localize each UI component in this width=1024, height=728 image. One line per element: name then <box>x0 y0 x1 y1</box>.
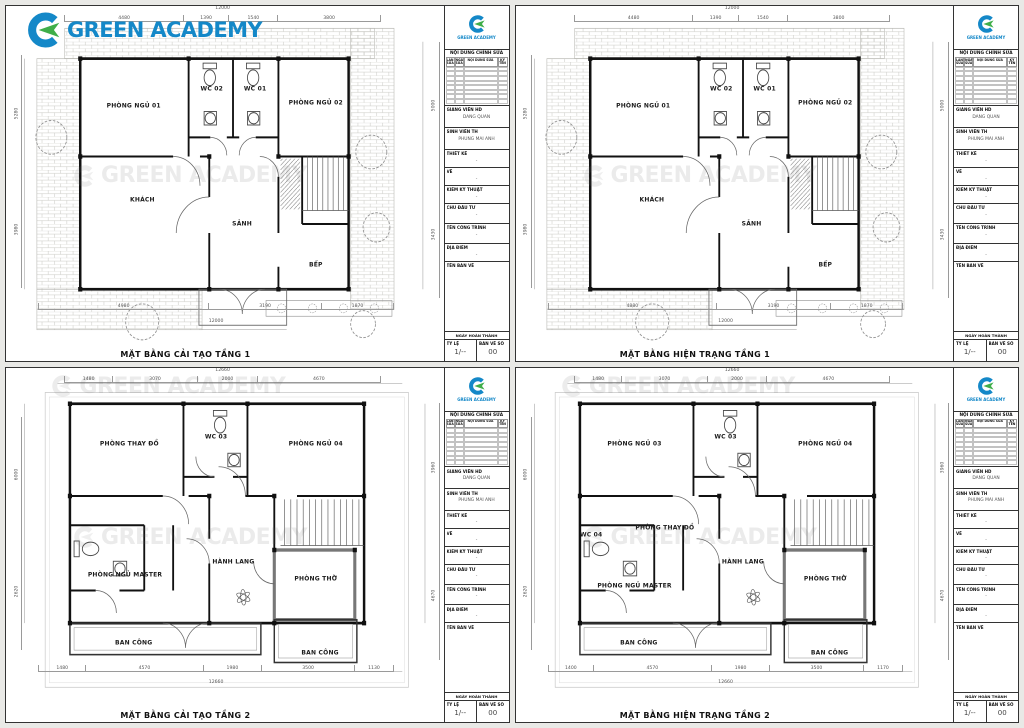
field-giang-vien-hd: GIẢNG VIÊN HD DANG QUAN <box>954 106 1018 128</box>
dimension-label: 4670 <box>767 376 890 383</box>
worship-room <box>784 550 865 620</box>
field-ve: VẼ - <box>445 529 509 547</box>
revision-empty-cell <box>464 460 498 465</box>
title-block: GREEN ACADEMY NỘI DUNG CHỈNH SỬA LẦN SỬA… <box>954 368 1018 723</box>
field-sinh-vien-th: SINH VIÊN TH PHUNG MAI ANH <box>954 489 1018 511</box>
dimension-label: 3960 <box>431 462 436 474</box>
sheet-number-cell: BẢN VẼ SỐ 00 <box>986 701 1019 722</box>
revision-empty-cell <box>1007 460 1017 465</box>
field-dia-diem: ĐỊA ĐIỂM - <box>954 244 1018 262</box>
stair-hatch <box>790 159 810 210</box>
dimension-label: 1480 <box>574 376 623 383</box>
title-block-footer: NGÀY HOÀN THÀNH TỶ LỆ 1/-- BẢN VẼ SỐ 00 <box>954 332 1018 361</box>
scale-cell: TỶ LỆ 1/-- <box>954 340 986 361</box>
title-block: GREEN ACADEMY NỘI DUNG CHỈNH SỬA LẦN SỬA… <box>954 6 1018 361</box>
dimension-row-top: 4480139015403800 <box>574 15 890 22</box>
scale-cell: TỶ LỆ 1/-- <box>445 701 477 722</box>
field-dia-diem: ĐỊA ĐIỂM - <box>445 244 509 262</box>
dimension-label: 3430 <box>431 228 436 240</box>
sheet-number-value: 00 <box>989 709 1017 717</box>
revision-header: NỘI DUNG CHỈNH SỬA <box>954 412 1018 419</box>
field-kiem-ky-thuat: KIỂM KỸ THUẬT - <box>445 186 509 204</box>
revision-column-header: LẦN SỬA <box>446 57 455 67</box>
sheet-number-value: 00 <box>479 709 507 717</box>
dimension-column-left: 52803980 <box>11 55 22 288</box>
dimension-label: 1170 <box>864 665 904 672</box>
revision-column-header: KÝ TÊN <box>1007 419 1017 429</box>
dimension-label: 4570 <box>86 665 204 672</box>
revision-table: NỘI DUNG CHỈNH SỬA LẦN SỬANGÀY SỬANỘI DU… <box>954 412 1018 468</box>
floor2-plan-drawing <box>8 370 442 708</box>
dimension-label: 4880 <box>548 303 717 310</box>
revision-header: NỘI DUNG CHỈNH SỬA <box>445 412 509 419</box>
dimension-label: 4570 <box>594 665 712 672</box>
dimension-label: 5280 <box>523 108 528 120</box>
dimension-label: 1480 <box>64 376 113 383</box>
revision-empty-cell <box>446 460 455 465</box>
revision-column-header: KÝ TÊN <box>498 57 508 67</box>
revision-column-header: NỘI DUNG SỬA <box>973 57 1007 67</box>
dimension-label: 3190 <box>209 303 322 310</box>
plan-drawing-slot <box>518 8 952 346</box>
sheet-quadrant-bottom-right: GREEN ACADEMY GREEN ACADEMY 12660 148030… <box>515 367 1020 724</box>
scale-value: 1/-- <box>447 348 475 356</box>
title-block-slot: GREEN ACADEMY NỘI DUNG CHỈNH SỬA LẦN SỬA… <box>445 368 509 723</box>
logo-text: GREEN ACADEMY <box>967 397 1006 402</box>
logo-g-icon <box>977 15 995 33</box>
dimension-label: 4670 <box>941 590 946 602</box>
title-block-footer: NGÀY HOÀN THÀNH TỶ LỆ 1/-- BẢN VẼ SỐ 00 <box>445 332 509 361</box>
title-block-logo: GREEN ACADEMY <box>954 368 1018 412</box>
house-outline <box>80 59 348 290</box>
dimension-row-bottom: 14804570198035001130 <box>38 665 393 672</box>
dimension-label: 1870 <box>322 303 394 310</box>
revision-table: NỘI DUNG CHỈNH SỬA LẦN SỬANGÀY SỬANỘI DU… <box>954 50 1018 106</box>
field-kiem-ky-thuat: KIỂM KỸ THUẬT - <box>954 186 1018 204</box>
logo-g-icon <box>468 15 486 33</box>
revision-grid: LẦN SỬANGÀY SỬANỘI DUNG SỬAKÝ TÊN <box>446 419 508 466</box>
dimension-label: 1540 <box>739 15 788 22</box>
scale-value: 1/-- <box>447 709 475 717</box>
field-ten-ban-ve: TÊN BẢN VẼ <box>445 262 509 332</box>
sheet-number-value: 00 <box>989 348 1017 356</box>
revision-empty-cell <box>1007 99 1017 104</box>
field-thiet-ke: THIẾT KẾ - <box>954 150 1018 168</box>
title-block-footer: NGÀY HOÀN THÀNH TỶ LỆ 1/-- BẢN VẼ SỐ 00 <box>954 693 1018 722</box>
field-dia-diem: ĐỊA ĐIỂM - <box>445 605 509 623</box>
dimension-label: 3500 <box>262 665 355 672</box>
field-giang-vien-hd: GIẢNG VIÊN HD DANG QUAN <box>954 467 1018 489</box>
plan-drawing-slot <box>8 8 442 346</box>
revision-empty-cell <box>455 99 464 104</box>
dimension-label: 4670 <box>258 376 381 383</box>
dimension-label: 3500 <box>770 665 863 672</box>
revision-grid: LẦN SỬANGÀY SỬANỘI DUNG SỬAKÝ TÊN <box>955 419 1017 466</box>
field-dia-diem: ĐỊA ĐIỂM - <box>954 605 1018 623</box>
title-block-slot: GREEN ACADEMY NỘI DUNG CHỈNH SỬA LẦN SỬA… <box>954 368 1018 723</box>
plan-area: GREEN ACADEMY 12000 4480139015403800 488… <box>516 6 955 361</box>
field-ten-cong-trinh: TÊN CÔNG TRÌNH - <box>954 224 1018 244</box>
dimension-label: 3800 <box>278 15 380 22</box>
revision-column-header: LẦN SỬA <box>446 419 455 429</box>
dimension-label: 1130 <box>355 665 394 672</box>
revision-empty-cell <box>973 99 1007 104</box>
drawing-sheet: GREEN ACADEMY GREEN ACADEMY 12660 148030… <box>5 367 510 724</box>
dimension-label: 3430 <box>941 228 946 240</box>
dimension-label: 2000 <box>708 376 768 383</box>
floor1-plan-drawing <box>8 8 442 346</box>
scale-value: 1/-- <box>956 348 984 356</box>
field-chu-dau-tu: CHỦ ĐẦU TƯ - <box>954 565 1018 585</box>
dimension-label: 2000 <box>198 376 258 383</box>
plan-drawing-slot <box>518 370 952 708</box>
overall-dimension-top: 12660 <box>64 368 380 373</box>
green-academy-logo: GREEN ACADEMY <box>26 12 262 48</box>
footer-label: NGÀY HOÀN THÀNH <box>445 332 509 340</box>
dimension-label: 1390 <box>693 15 739 22</box>
house-outline <box>590 59 858 290</box>
revision-empty-cell <box>498 99 508 104</box>
dimension-label: 5280 <box>14 108 19 120</box>
balconies <box>70 619 357 662</box>
scale-cell: TỶ LỆ 1/-- <box>445 340 477 361</box>
drawing-set: GREEN ACADEMY <box>0 0 1024 728</box>
revision-grid: LẦN SỬANGÀY SỬANỘI DUNG SỬAKÝ TÊN <box>446 57 508 104</box>
overall-dimension-bottom: 12000 <box>38 319 393 324</box>
revision-column-header: NGÀY SỬA <box>964 419 973 429</box>
dimension-label: 4480 <box>574 15 693 22</box>
sheet-quadrant-top-right: GREEN ACADEMY 12000 4480139015403800 488… <box>515 5 1020 362</box>
title-block-logo: GREEN ACADEMY <box>445 368 509 412</box>
field-ten-ban-ve: TÊN BẢN VẼ <box>954 262 1018 332</box>
revision-column-header: NGÀY SỬA <box>455 57 464 67</box>
field-ten-ban-ve: TÊN BẢN VẼ <box>954 623 1018 693</box>
dimension-row-top: 1480307020004670 <box>64 376 380 383</box>
revision-table: NỘI DUNG CHỈNH SỬA LẦN SỬANGÀY SỬANỘI DU… <box>445 50 509 106</box>
plan-drawing-slot <box>8 370 442 708</box>
revision-empty-cell <box>446 99 455 104</box>
scale-cell: TỶ LỆ 1/-- <box>954 701 986 722</box>
revision-empty-cell <box>973 460 1007 465</box>
revision-empty-cell <box>964 460 973 465</box>
plan-title: MẶT BẰNG HIỆN TRẠNG TẦNG 2 <box>516 711 875 720</box>
field-ten-cong-trinh: TÊN CÔNG TRÌNH - <box>445 585 509 605</box>
dimension-label: 6000 <box>14 469 19 481</box>
plan-area: GREEN ACADEMY GREEN ACADEMY 12660 148030… <box>516 368 955 723</box>
plan-title: MẶT BẰNG CẢI TẠO TẦNG 1 <box>6 350 365 359</box>
dimension-label: 1980 <box>204 665 262 672</box>
revision-grid: LẦN SỬANGÀY SỬANỘI DUNG SỬAKÝ TÊN <box>955 57 1017 104</box>
revision-column-header: NỘI DUNG SỬA <box>973 419 1007 429</box>
sheet-number-cell: BẢN VẼ SỐ 00 <box>986 340 1019 361</box>
overall-dimension-top: 12660 <box>574 368 890 373</box>
revision-column-header: NỘI DUNG SỬA <box>464 57 498 67</box>
revision-column-header: NGÀY SỬA <box>455 419 464 429</box>
dimension-label: 1870 <box>831 303 903 310</box>
field-ve: VẼ - <box>445 168 509 186</box>
dimension-row-top: 1480307020004670 <box>574 376 890 383</box>
overall-dimension-bottom: 12660 <box>38 680 393 685</box>
dimension-label: 6000 <box>523 469 528 481</box>
dimension-label: 5000 <box>431 100 436 112</box>
field-ten-ban-ve: TÊN BẢN VẼ <box>445 623 509 693</box>
logo-g-icon <box>977 377 995 395</box>
dimension-label: 2620 <box>523 586 528 598</box>
dimension-label: 3800 <box>788 15 890 22</box>
plan-area: GREEN ACADEMY GREEN ACADEMY 12660 148030… <box>6 368 445 723</box>
balconies <box>579 619 866 662</box>
dimension-label: 1980 <box>712 665 770 672</box>
logo-text: GREEN ACADEMY <box>457 35 496 40</box>
dimension-label: 4670 <box>431 590 436 602</box>
dimension-column-left: 52803980 <box>521 55 532 288</box>
field-sinh-vien-th: SINH VIÊN TH PHUNG MAI ANH <box>445 489 509 511</box>
revision-column-header: LẦN SỬA <box>955 419 964 429</box>
title-block-logo: GREEN ACADEMY <box>954 6 1018 50</box>
logo-text: GREEN ACADEMY <box>67 18 262 42</box>
dimension-row-bottom: 498031901870 <box>38 303 393 310</box>
field-ve: VẼ - <box>954 168 1018 186</box>
title-block-slot: GREEN ACADEMY NỘI DUNG CHỈNH SỬA LẦN SỬA… <box>445 6 509 361</box>
revision-header: NỘI DUNG CHỈNH SỬA <box>445 50 509 57</box>
revision-empty-cell <box>964 99 973 104</box>
revision-column-header: NỘI DUNG SỬA <box>464 419 498 429</box>
dimension-label: 3070 <box>113 376 198 383</box>
dimension-label: 1400 <box>548 665 594 672</box>
logo-text: GREEN ACADEMY <box>967 35 1006 40</box>
title-block-footer: NGÀY HOÀN THÀNH TỶ LỆ 1/-- BẢN VẼ SỐ 00 <box>445 693 509 722</box>
dimension-label: 3980 <box>14 224 19 236</box>
revision-column-header: KÝ TÊN <box>498 419 508 429</box>
dimension-label: 2620 <box>14 586 19 598</box>
dimension-label: 3960 <box>941 462 946 474</box>
revision-header: NỘI DUNG CHỈNH SỬA <box>954 50 1018 57</box>
sheet-quadrant-bottom-left: GREEN ACADEMY GREEN ACADEMY 12660 148030… <box>5 367 510 724</box>
revision-empty-cell <box>498 460 508 465</box>
revision-column-header: KÝ TÊN <box>1007 57 1017 67</box>
dimension-label: 5000 <box>941 100 946 112</box>
revision-empty-cell <box>464 99 498 104</box>
logo-g-icon <box>26 12 62 48</box>
field-ten-cong-trinh: TÊN CÔNG TRÌNH - <box>954 585 1018 605</box>
dimension-label: 3190 <box>717 303 831 310</box>
revision-empty-cell <box>455 460 464 465</box>
field-chu-dau-tu: CHỦ ĐẦU TƯ - <box>445 204 509 224</box>
floor2-plan-drawing <box>518 370 952 708</box>
revision-empty-cell <box>955 99 964 104</box>
footer-label: NGÀY HOÀN THÀNH <box>445 693 509 701</box>
plan-title: MẶT BẰNG HIỆN TRẠNG TẦNG 1 <box>516 350 875 359</box>
dimension-label: 1480 <box>38 665 86 672</box>
dimension-label: 4980 <box>38 303 209 310</box>
field-ten-cong-trinh: TÊN CÔNG TRÌNH - <box>445 224 509 244</box>
sheet-number-value: 00 <box>479 348 507 356</box>
field-ve: VẼ - <box>954 529 1018 547</box>
overall-dimension-top: 12000 <box>64 6 380 11</box>
title-block: GREEN ACADEMY NỘI DUNG CHỈNH SỬA LẦN SỬA… <box>445 368 509 723</box>
overall-dimension-bottom: 12660 <box>548 680 903 685</box>
field-kiem-ky-thuat: KIỂM KỸ THUẬT - <box>445 547 509 565</box>
dimension-row-bottom: 14004570198035001170 <box>548 665 903 672</box>
dimension-label: 3070 <box>622 376 707 383</box>
field-sinh-vien-th: SINH VIÊN TH PHUNG MAI ANH <box>954 128 1018 150</box>
sheet-quadrant-top-left: GREEN ACADEMY <box>5 5 510 362</box>
dimension-row-bottom: 488031901870 <box>548 303 903 310</box>
overall-dimension-top: 12000 <box>574 6 890 11</box>
revision-empty-cell <box>955 460 964 465</box>
dimension-column-right: 39604670 <box>938 403 949 660</box>
title-block-logo: GREEN ACADEMY <box>445 6 509 50</box>
logo-g-icon <box>468 377 486 395</box>
plan-area: GREEN ACADEMY <box>6 6 445 361</box>
title-block-slot: GREEN ACADEMY NỘI DUNG CHỈNH SỬA LẦN SỬA… <box>954 6 1018 361</box>
title-block: GREEN ACADEMY NỘI DUNG CHỈNH SỬA LẦN SỬA… <box>445 6 509 361</box>
field-chu-dau-tu: CHỦ ĐẦU TƯ - <box>445 565 509 585</box>
stair-hatch <box>280 159 300 210</box>
drawing-sheet: GREEN ACADEMY 12000 4480139015403800 488… <box>515 5 1020 362</box>
overall-dimension-bottom: 12000 <box>548 319 903 324</box>
dimension-column-right: 50003430 <box>429 42 440 299</box>
dimension-column-right: 50003430 <box>938 42 949 299</box>
field-thiet-ke: THIẾT KẾ - <box>954 511 1018 529</box>
field-giang-vien-hd: GIẢNG VIÊN HD DANG QUAN <box>445 467 509 489</box>
dimension-label: 3980 <box>523 224 528 236</box>
dimension-column-left: 60002620 <box>521 417 532 650</box>
sheet-number-cell: BẢN VẼ SỐ 00 <box>476 340 509 361</box>
floor1-plan-drawing <box>518 8 952 346</box>
revision-column-header: LẦN SỬA <box>955 57 964 67</box>
revision-table: NỘI DUNG CHỈNH SỬA LẦN SỬANGÀY SỬANỘI DU… <box>445 412 509 468</box>
drawing-sheet: GREEN ACADEMY <box>5 5 510 362</box>
footer-label: NGÀY HOÀN THÀNH <box>954 693 1018 701</box>
dimension-column-right: 39604670 <box>429 403 440 660</box>
field-thiet-ke: THIẾT KẾ - <box>445 150 509 168</box>
sheet-number-cell: BẢN VẼ SỐ 00 <box>476 701 509 722</box>
field-kiem-ky-thuat: KIỂM KỸ THUẬT - <box>954 547 1018 565</box>
field-thiet-ke: THIẾT KẾ - <box>445 511 509 529</box>
plan-title: MẶT BẰNG CẢI TẠO TẦNG 2 <box>6 711 365 720</box>
logo-text: GREEN ACADEMY <box>457 397 496 402</box>
scale-value: 1/-- <box>956 709 984 717</box>
field-sinh-vien-th: SINH VIÊN TH PHUNG MAI ANH <box>445 128 509 150</box>
revision-column-header: NGÀY SỬA <box>964 57 973 67</box>
drawing-sheet: GREEN ACADEMY GREEN ACADEMY 12660 148030… <box>515 367 1020 724</box>
field-giang-vien-hd: GIẢNG VIÊN HD DANG QUAN <box>445 106 509 128</box>
worship-room <box>274 550 355 620</box>
footer-label: NGÀY HOÀN THÀNH <box>954 332 1018 340</box>
field-chu-dau-tu: CHỦ ĐẦU TƯ - <box>954 204 1018 224</box>
dimension-column-left: 60002620 <box>11 417 22 650</box>
